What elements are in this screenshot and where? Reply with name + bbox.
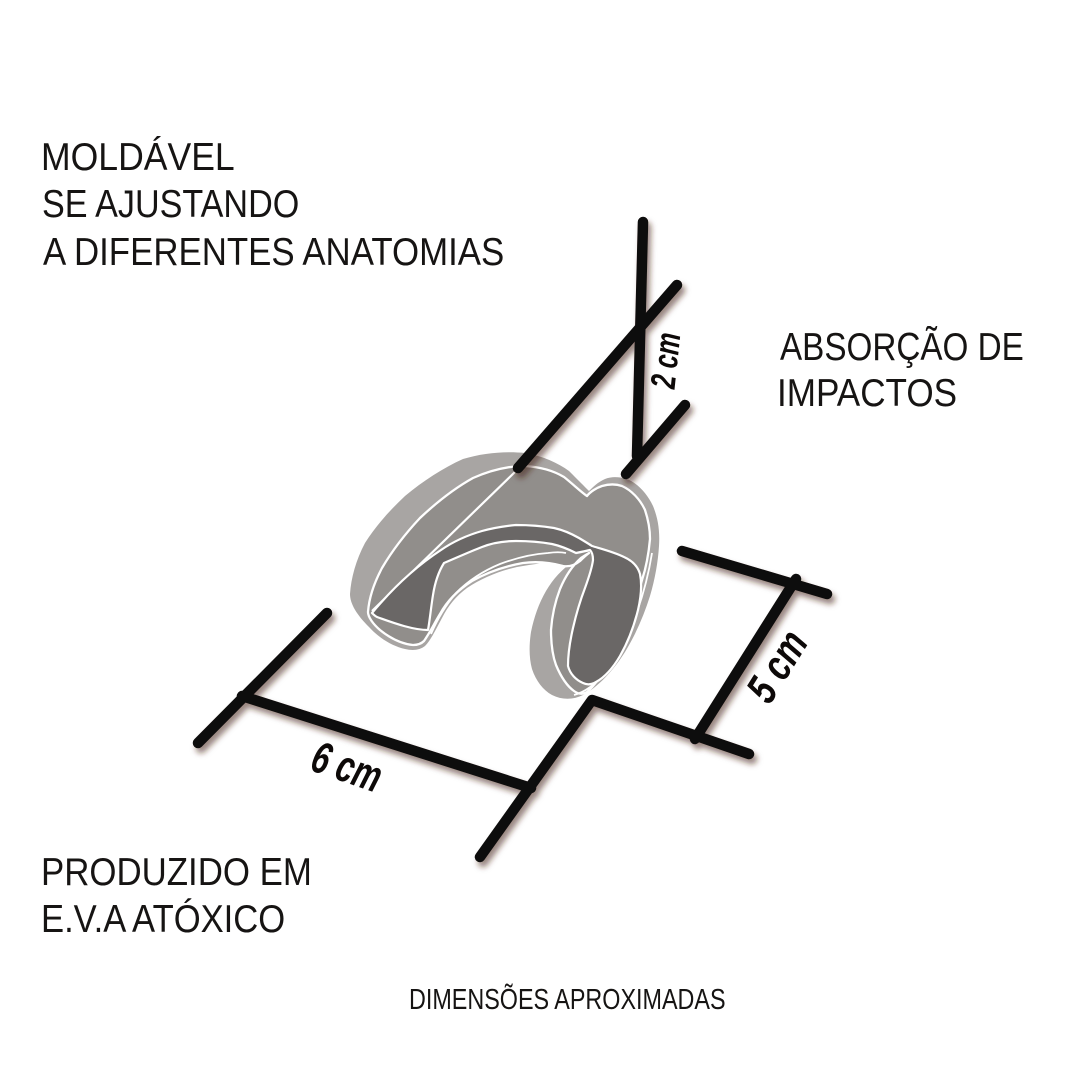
svg-text:2 cm: 2 cm <box>644 331 689 391</box>
svg-text:5 cm: 5 cm <box>737 622 817 711</box>
